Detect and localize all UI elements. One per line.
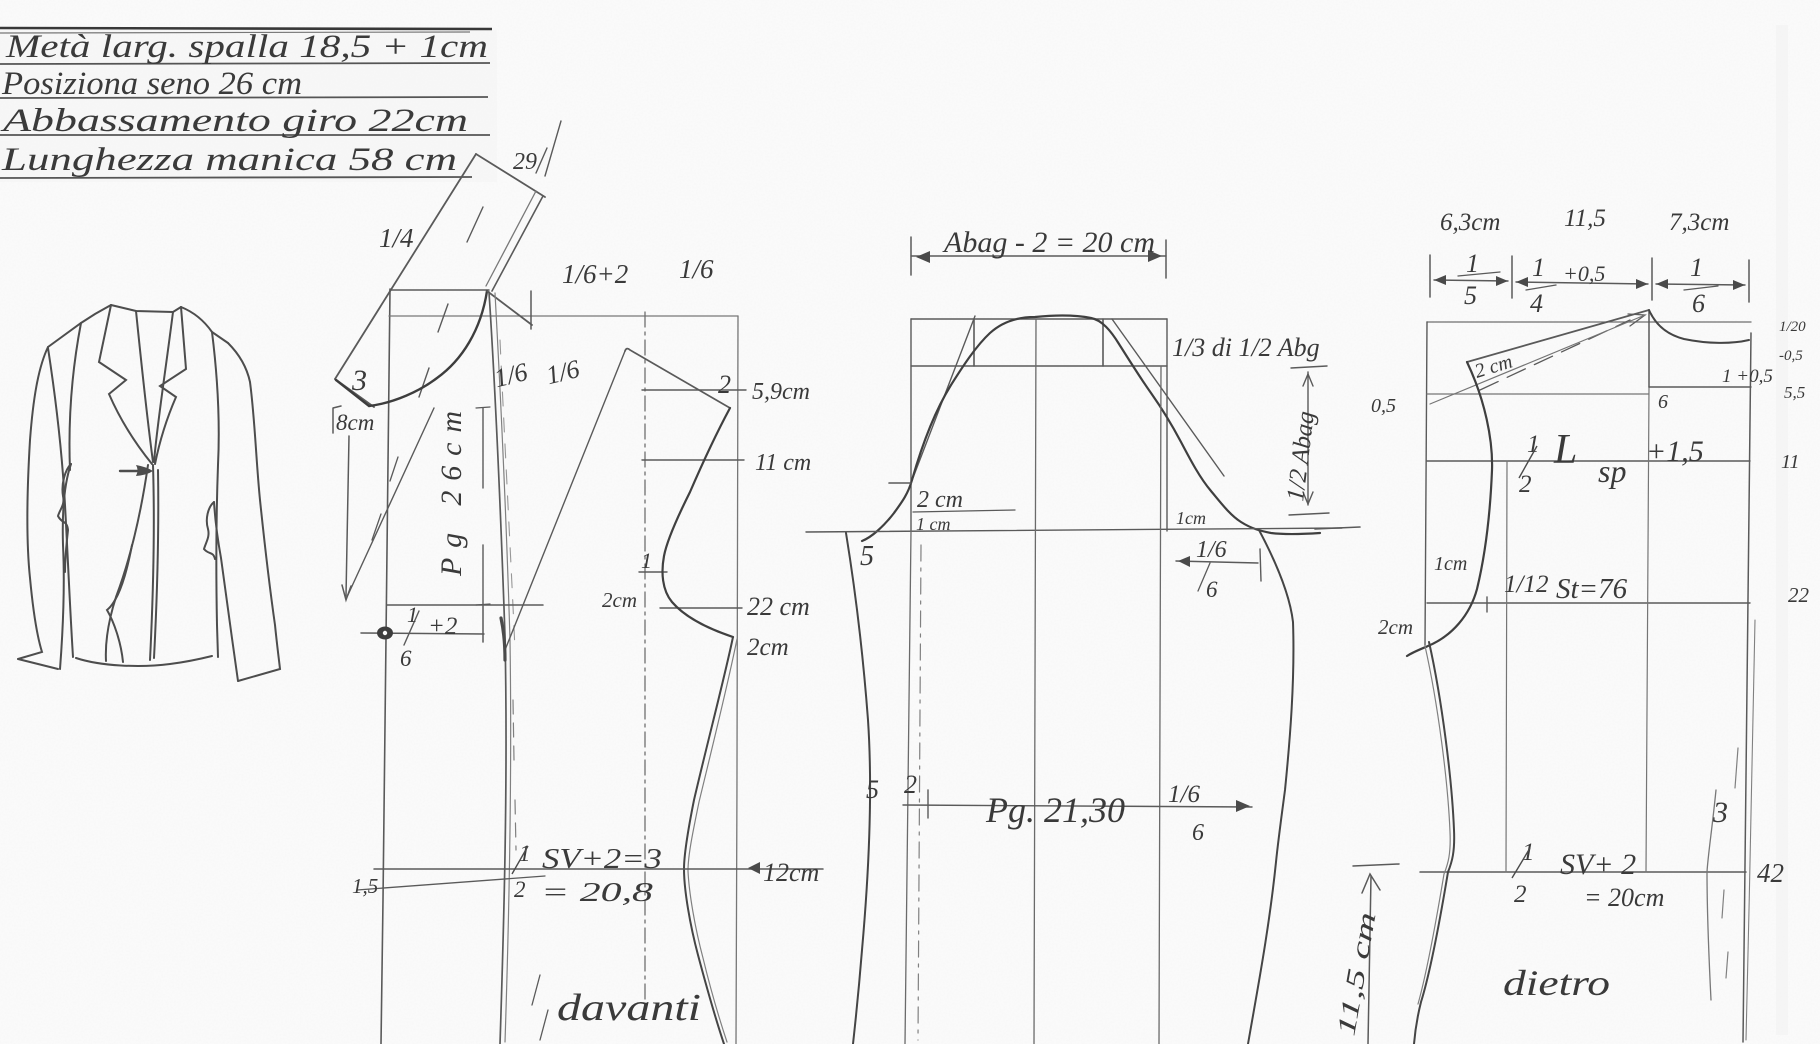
svg-text:+0,5: +0,5	[1563, 261, 1605, 286]
svg-text:2: 2	[514, 877, 526, 902]
svg-text:6: 6	[400, 646, 412, 671]
svg-text:1: 1	[1532, 253, 1545, 282]
svg-text:6: 6	[1206, 577, 1218, 602]
svg-text:2: 2	[1514, 881, 1527, 908]
svg-text:1/3 di 1/2 Abg: 1/3 di 1/2 Abg	[1172, 333, 1320, 362]
svg-text:+1,5: +1,5	[1646, 435, 1704, 468]
svg-text:8cm: 8cm	[336, 410, 374, 435]
svg-text:L: L	[1553, 427, 1577, 473]
svg-text:1: 1	[1522, 839, 1535, 866]
svg-text:1/20: 1/20	[1779, 319, 1806, 335]
svg-text:5: 5	[1464, 281, 1477, 310]
svg-text:5,5: 5,5	[1784, 383, 1805, 402]
svg-text:6: 6	[1658, 391, 1668, 413]
svg-text:1: 1	[641, 548, 652, 573]
svg-text:Lunghezza manica 58 cm: Lunghezza manica 58 cm	[1, 142, 457, 178]
svg-text:3: 3	[351, 364, 367, 397]
svg-text:Pg. 21,30: Pg. 21,30	[985, 790, 1125, 830]
svg-text:11: 11	[1781, 451, 1800, 473]
svg-text:1/6: 1/6	[1168, 781, 1200, 808]
svg-text:22: 22	[1788, 583, 1810, 607]
svg-text:1cm: 1cm	[1434, 553, 1467, 575]
svg-text:1: 1	[407, 602, 418, 627]
svg-text:sp: sp	[1598, 453, 1626, 489]
svg-text:6,3cm: 6,3cm	[1440, 209, 1500, 236]
svg-text:12cm: 12cm	[763, 858, 819, 887]
svg-text:1: 1	[519, 841, 531, 866]
svg-text:= 20,8: = 20,8	[541, 877, 654, 907]
svg-text:Metà larg. spalla 18,5 + 1cm: Metà larg. spalla 18,5 + 1cm	[5, 29, 488, 65]
svg-text:davanti: davanti	[557, 987, 701, 1029]
svg-text:5: 5	[860, 541, 874, 572]
svg-text:Abag - 2 = 20 cm: Abag - 2 = 20 cm	[942, 226, 1155, 259]
svg-text:4: 4	[1530, 289, 1543, 318]
svg-text:1/6: 1/6	[679, 254, 714, 284]
svg-text:1/12: 1/12	[1504, 571, 1548, 598]
svg-text:11,5: 11,5	[1564, 205, 1606, 232]
svg-text:dietro: dietro	[1503, 963, 1610, 1003]
svg-text:2cm: 2cm	[1378, 615, 1413, 639]
svg-text:1: 1	[1690, 253, 1703, 282]
svg-text:2: 2	[904, 770, 917, 799]
svg-text:St=76: St=76	[1556, 573, 1628, 605]
svg-text:6: 6	[1192, 820, 1204, 846]
svg-text:= 20cm: = 20cm	[1584, 883, 1664, 912]
svg-text:2cm: 2cm	[747, 634, 789, 661]
svg-text:1,5: 1,5	[352, 874, 378, 898]
svg-text:29: 29	[513, 149, 537, 175]
svg-text:1cm: 1cm	[1176, 508, 1206, 528]
svg-text:2cm: 2cm	[602, 588, 637, 612]
svg-text:2: 2	[718, 370, 731, 399]
svg-text:42: 42	[1757, 858, 1784, 888]
svg-text:2 cm: 2 cm	[917, 487, 963, 513]
svg-text:5: 5	[866, 775, 879, 804]
svg-text:Posiziona seno 26 cm: Posiziona seno 26 cm	[1, 66, 302, 102]
svg-text:0,5: 0,5	[1371, 395, 1396, 417]
svg-text:11 cm: 11 cm	[755, 450, 811, 476]
svg-text:SV+ 2: SV+ 2	[1560, 848, 1636, 881]
svg-text:1/6: 1/6	[1196, 537, 1227, 563]
svg-text:1: 1	[1466, 249, 1479, 278]
svg-text:22 cm: 22 cm	[747, 592, 810, 621]
svg-text:5,9cm: 5,9cm	[752, 379, 810, 405]
svg-text:1 +0,5: 1 +0,5	[1722, 366, 1773, 387]
svg-text:3: 3	[1712, 796, 1728, 829]
svg-text:1 cm: 1 cm	[916, 514, 951, 534]
svg-text:-0,5: -0,5	[1779, 348, 1803, 364]
svg-text:Abbassamento giro 22cm: Abbassamento giro 22cm	[0, 103, 468, 139]
svg-text:1/6+2: 1/6+2	[562, 259, 628, 289]
svg-text:SV+2=3: SV+2=3	[542, 843, 662, 875]
svg-text:1/4: 1/4	[379, 223, 414, 253]
svg-text:+2: +2	[428, 613, 457, 640]
svg-text:7,3cm: 7,3cm	[1669, 209, 1729, 236]
svg-text:6: 6	[1692, 289, 1705, 318]
